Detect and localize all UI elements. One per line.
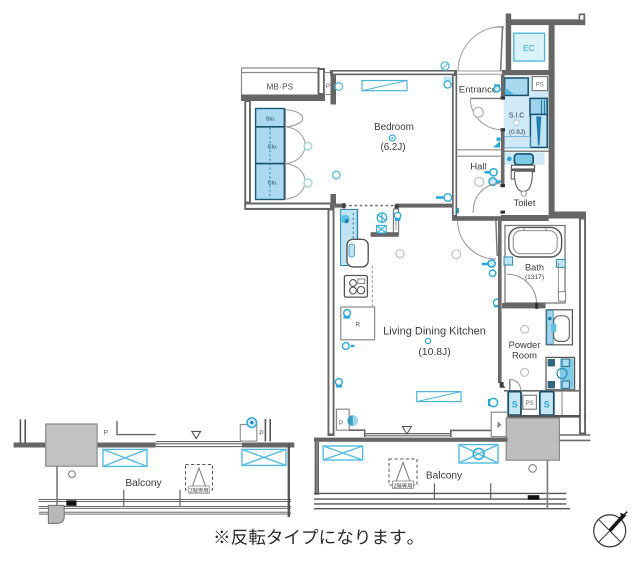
svg-text:P: P [104, 430, 109, 437]
svg-text:(6.2J): (6.2J) [380, 142, 405, 153]
svg-text:(10.8J): (10.8J) [418, 347, 450, 358]
svg-text:Room: Room [512, 350, 537, 361]
svg-text:Powder: Powder [509, 339, 541, 350]
svg-text:EC: EC [523, 43, 535, 53]
svg-text:(1317): (1317) [525, 274, 544, 281]
svg-text:MB·PS: MB·PS [267, 83, 294, 92]
svg-text:Living Dining Kitchen: Living Dining Kitchen [383, 326, 486, 338]
svg-text:P: P [259, 430, 264, 437]
svg-text:PS: PS [536, 82, 544, 88]
svg-text:S.I.C: S.I.C [509, 113, 525, 120]
svg-text:Toilet: Toilet [514, 197, 536, 208]
svg-text:P: P [326, 84, 330, 90]
svg-text:Sto.: Sto. [266, 117, 276, 123]
svg-text:Bath: Bath [525, 263, 544, 273]
svg-text:S: S [512, 400, 518, 410]
svg-text:Hall: Hall [470, 162, 487, 173]
svg-text:Balcony: Balcony [125, 478, 162, 489]
svg-text:Clo.: Clo. [268, 145, 278, 151]
svg-text:(0.9J): (0.9J) [509, 129, 525, 136]
svg-text:Balcony: Balcony [426, 471, 463, 482]
svg-text:Bedroom: Bedroom [374, 122, 414, 133]
svg-text:P: P [339, 421, 343, 427]
svg-text:Entrance: Entrance [459, 85, 497, 96]
svg-text:Clo.: Clo. [268, 181, 278, 187]
svg-text:PS: PS [526, 401, 534, 407]
svg-text:S: S [544, 400, 550, 410]
svg-text:R: R [355, 322, 360, 329]
